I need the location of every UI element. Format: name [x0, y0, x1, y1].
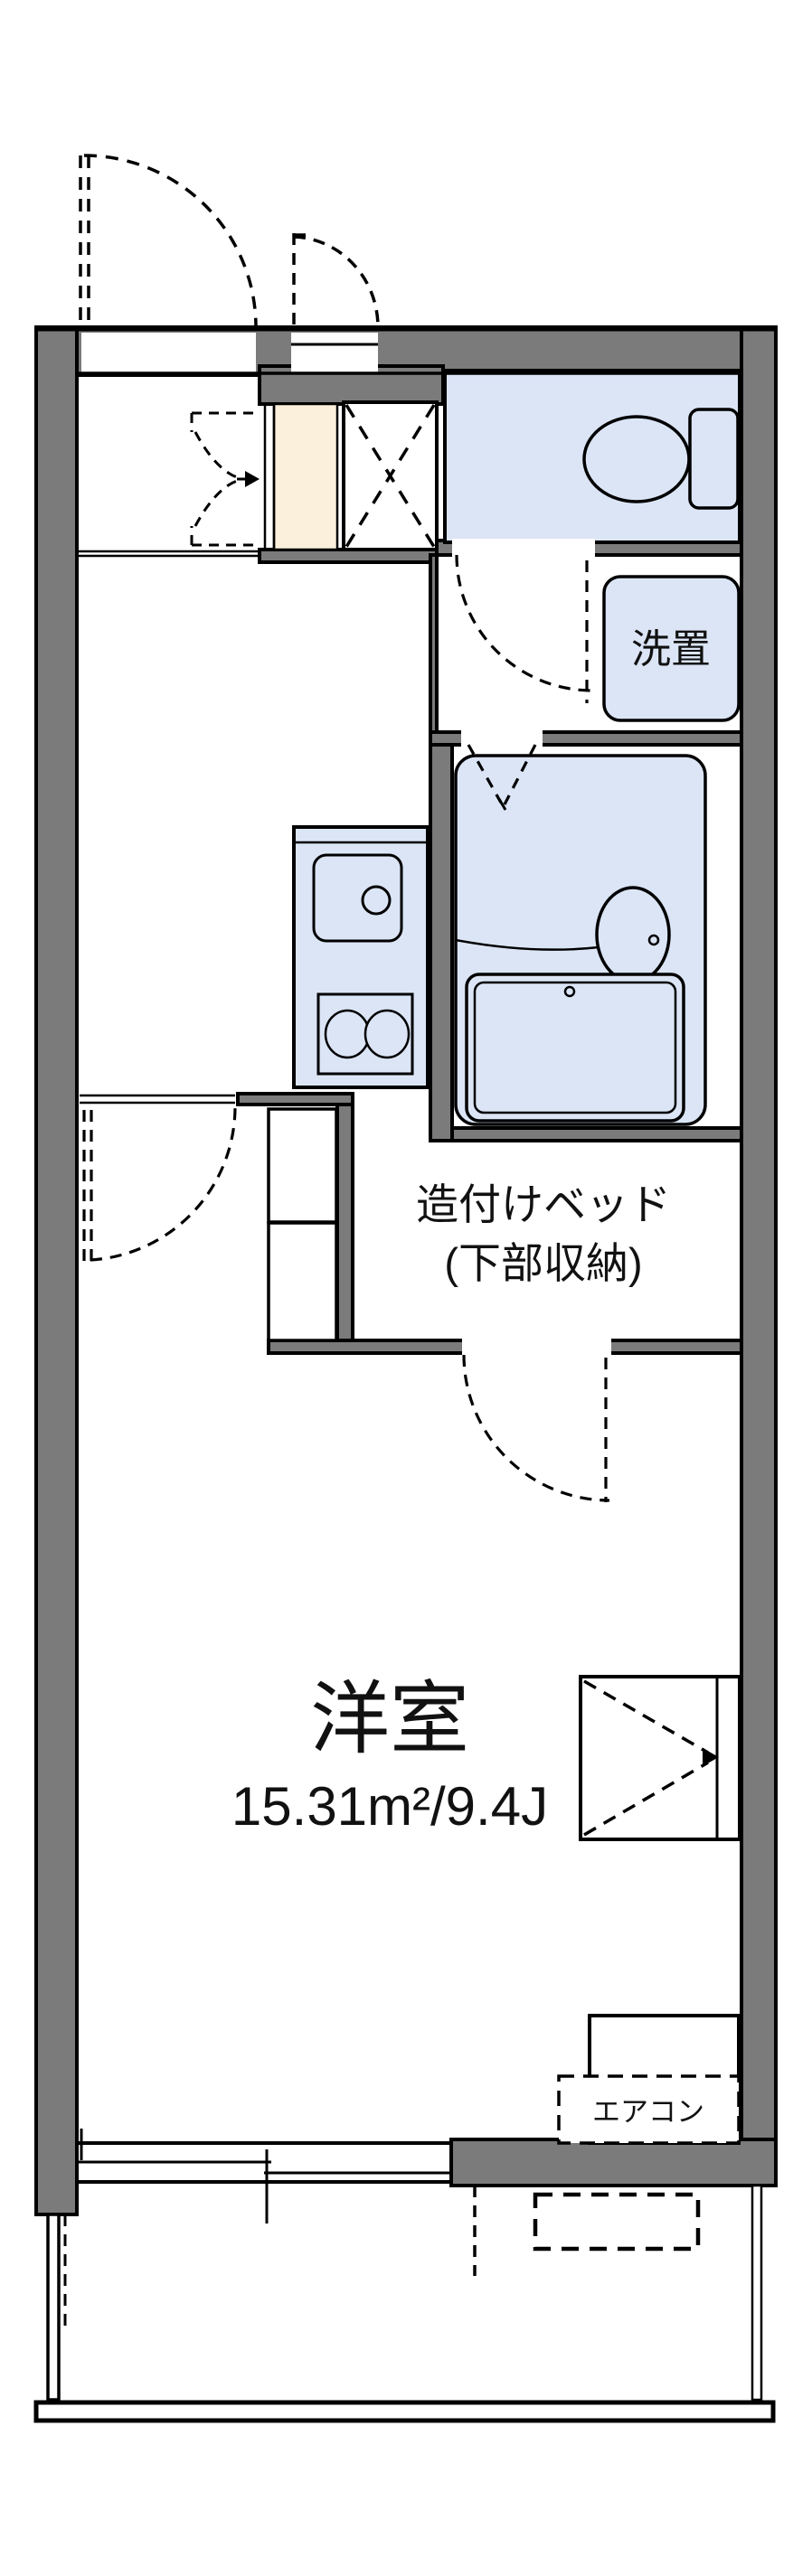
wall-corridor-bed: [337, 1105, 353, 1353]
shelf-column: [269, 1109, 336, 1340]
toilet-bowl: [584, 417, 689, 502]
balcony-rail-bottom: [36, 2402, 773, 2421]
wall-bath-south: [452, 1128, 741, 1141]
wall-left: [36, 327, 77, 2214]
bed-label-line2: (下部収納): [444, 1239, 642, 1287]
floor-plan: 洗置 造付けベッド: [0, 0, 812, 2576]
balcony-rail-right: [752, 2186, 761, 2400]
bed-label-line1: 造付けベッド: [416, 1180, 671, 1228]
entrance-door-opening: [81, 333, 256, 373]
stove-burner-right: [365, 1011, 409, 1058]
entrance-storage-box: [344, 402, 437, 550]
main-room-name: 洋室: [310, 1674, 469, 1763]
closet: [581, 1677, 740, 1839]
washer-space-label: 洗置: [631, 627, 711, 672]
shelf-lower-box: [269, 1223, 336, 1340]
wall-kitchen-bath: [430, 745, 452, 1141]
toilet-tank: [690, 409, 738, 508]
wall-corridor-washroom: [430, 555, 437, 741]
main-room-area: 15.31m²/9.4J: [231, 1776, 548, 1837]
bath-stool: [597, 888, 669, 982]
wall-entrance-south: [260, 550, 437, 562]
kitchen-unit: [294, 827, 428, 1087]
ac-label: エアコン: [592, 2096, 704, 2128]
toilet-doorway: [452, 539, 595, 557]
entrance-tataki: [274, 404, 337, 550]
bath-unit: [456, 756, 705, 1124]
stove-burner-left: [326, 1011, 369, 1058]
bathtub-outer: [467, 974, 684, 1121]
exterior-storage-opening: [291, 333, 378, 373]
bed-storage-doorway: [462, 1339, 611, 1355]
wall-bottom: [451, 2139, 776, 2186]
kitchen-faucet: [363, 887, 390, 914]
washer-space: 洗置: [604, 577, 739, 720]
wall-kitchen-south: [238, 1094, 353, 1105]
balcony-partition-left: [48, 2214, 59, 2400]
bath-doorway: [461, 730, 543, 747]
wall-right: [741, 327, 776, 2186]
toilet-fixture: [584, 409, 738, 508]
shelf-upper-box: [269, 1109, 336, 1222]
balcony-outdoor-unit: [535, 2195, 698, 2249]
